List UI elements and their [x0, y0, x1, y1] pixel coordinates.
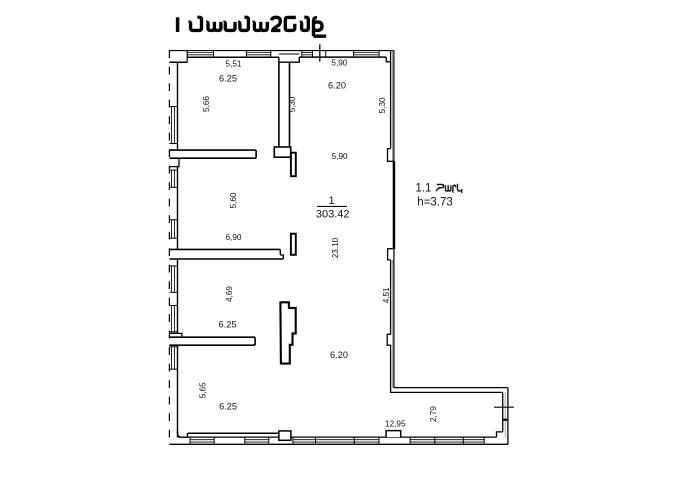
svg-text:23,10: 23,10: [331, 237, 340, 258]
svg-text:5,60: 5,60: [229, 192, 238, 208]
svg-text:4,51: 4,51: [382, 287, 391, 303]
svg-text:6.25: 6.25: [219, 320, 237, 330]
svg-text:6.25: 6.25: [219, 401, 237, 411]
svg-text:h=3.73: h=3.73: [417, 196, 453, 208]
svg-text:6.25: 6.25: [219, 74, 237, 84]
svg-text:4,69: 4,69: [225, 286, 234, 302]
svg-text:303.42: 303.42: [316, 208, 350, 220]
svg-text:5,90: 5,90: [331, 59, 347, 68]
svg-text:5,90: 5,90: [332, 152, 348, 161]
svg-text:5,30: 5,30: [378, 97, 387, 113]
svg-text:6.20: 6.20: [330, 350, 348, 360]
svg-text:6,90: 6,90: [226, 233, 242, 242]
svg-text:5,51: 5,51: [226, 59, 242, 68]
svg-text:1.1: 1.1: [415, 182, 431, 194]
svg-text:1: 1: [328, 195, 334, 207]
svg-text:6.20: 6.20: [328, 81, 346, 91]
svg-text:5,66: 5,66: [202, 96, 211, 112]
svg-text:2,79: 2,79: [429, 406, 438, 422]
svg-text:5,30: 5,30: [288, 96, 297, 112]
svg-text:12,95: 12,95: [385, 419, 406, 428]
svg-text:5,65: 5,65: [198, 382, 207, 398]
